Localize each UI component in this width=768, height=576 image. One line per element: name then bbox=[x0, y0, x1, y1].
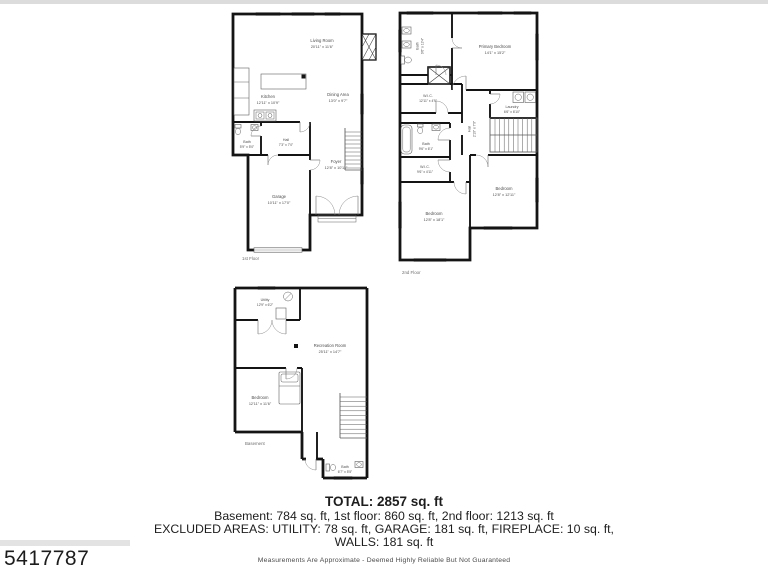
second-floor-stairs bbox=[490, 118, 537, 152]
wic-upper-label: W.I.C. bbox=[423, 94, 433, 98]
first-floor-plan: Living Room 20'11" x 11'6" Kitchen 12'11… bbox=[228, 8, 388, 270]
first-floor-bath-fixtures bbox=[235, 125, 258, 135]
second-floor-caption: 2nd Floor bbox=[402, 270, 421, 275]
hall-2f-label: Hall bbox=[468, 126, 472, 132]
mls-number: 5417787 bbox=[4, 547, 89, 571]
support-post bbox=[294, 344, 298, 348]
living-room-label: Living Room bbox=[310, 38, 334, 43]
bath-dims: 5'9" x 5'0" bbox=[240, 145, 255, 149]
bottom-border-strip bbox=[0, 540, 130, 546]
laundry-washer-dryer bbox=[513, 92, 536, 103]
laundry-dims: 6'6" x 6'10" bbox=[504, 110, 521, 114]
total-area-line: TOTAL: 2857 sq. ft bbox=[0, 495, 768, 509]
primary-bedroom-dims: 14'1" x 15'2" bbox=[485, 51, 506, 55]
hall-2f-dims: 2'10" x 7'0" bbox=[473, 120, 477, 137]
laundry-label: Laundry bbox=[506, 105, 519, 109]
bath-mid-label: Bath bbox=[422, 142, 429, 146]
bath-mid-dims: 9'6" x 6'1" bbox=[419, 147, 434, 151]
bath-top-dims: 9'6" x 13'4" bbox=[421, 37, 425, 54]
bedroom-left-dims: 12'8" x 18'1" bbox=[424, 218, 445, 222]
utility-dims: 12'9" x 6'2" bbox=[257, 303, 274, 307]
second-floor-plan: Bath 9'6" x 13'4" Primary Bedroom 14'1" … bbox=[392, 8, 547, 280]
wic-lower-label: W.I.C. bbox=[420, 165, 430, 169]
garage-label: Garage bbox=[272, 194, 287, 199]
utility-equipment bbox=[276, 292, 293, 319]
kitchen-dims: 12'11" x 10'9" bbox=[257, 101, 280, 105]
bedroom-left-label: Bedroom bbox=[426, 211, 444, 216]
wic-upper-dims: 12'11" x 4'9" bbox=[419, 99, 438, 103]
dining-area-label: Dining Area bbox=[327, 92, 349, 97]
basement-caption: Basement bbox=[245, 441, 266, 446]
fireplace bbox=[362, 34, 376, 60]
hall-label: Hall bbox=[283, 138, 289, 142]
first-floor-stairs bbox=[345, 128, 362, 170]
basement-bath-label: Bath bbox=[341, 465, 348, 469]
disclaimer-text: Measurements Are Approximate - Deemed Hi… bbox=[0, 557, 768, 564]
garage-dims: 10'11" x 17'0" bbox=[268, 201, 291, 205]
basement-plan: Utility 12'9" x 6'2" Recreation Room 25'… bbox=[222, 282, 377, 487]
basement-bedroom-dims: 12'11" x 11'6" bbox=[249, 402, 272, 406]
primary-bedroom-label: Primary Bedroom bbox=[479, 44, 512, 49]
kitchen-label: Kitchen bbox=[261, 94, 276, 99]
basement-bath-dims: 6'7" x 5'5" bbox=[338, 470, 353, 474]
basement-bedroom-label: Bedroom bbox=[252, 395, 270, 400]
foyer-dims: 12'8" x 10'11" bbox=[325, 166, 348, 170]
foyer-label: Foyer bbox=[331, 159, 342, 164]
first-floor-caption: 1st Floor bbox=[242, 256, 260, 261]
bedroom-right-dims: 12'8" x 12'11" bbox=[493, 193, 516, 197]
basement-stairs bbox=[340, 393, 367, 438]
top-border-strip bbox=[0, 0, 768, 4]
wic-lower-dims: 9'6" x 4'11" bbox=[417, 170, 434, 174]
garage-door bbox=[254, 248, 302, 252]
bedroom-right-label: Bedroom bbox=[496, 186, 514, 191]
basement-bed bbox=[279, 372, 300, 404]
dining-area-dims: 13'0" x 9'7" bbox=[329, 99, 348, 103]
bath-top-label: Bath bbox=[416, 42, 420, 49]
kitchen-island bbox=[261, 74, 306, 89]
bath-top-fixtures bbox=[401, 27, 411, 64]
first-floor-walls bbox=[233, 14, 362, 250]
recreation-room-label: Recreation Room bbox=[314, 343, 347, 348]
chase-box bbox=[428, 67, 450, 84]
recreation-room-dims: 25'11" x 14'7" bbox=[319, 350, 342, 354]
bath-label: Bath bbox=[243, 140, 250, 144]
floorplan-photo: Living Room 20'11" x 11'6" Kitchen 12'11… bbox=[0, 0, 768, 576]
hall-dims: 7'3" x 7'0" bbox=[279, 143, 294, 147]
living-room-dims: 20'11" x 11'6" bbox=[311, 45, 334, 49]
basement-walls bbox=[235, 288, 367, 478]
utility-label: Utility bbox=[261, 298, 270, 302]
basement-windows bbox=[258, 286, 352, 479]
